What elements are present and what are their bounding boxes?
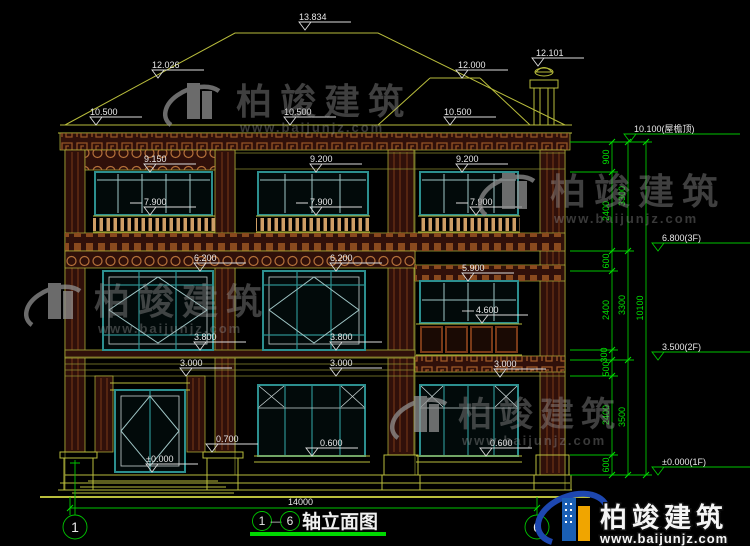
- dim-2400b: 2400: [601, 300, 611, 320]
- elev-band-right: 3.000: [494, 359, 517, 369]
- elev-ridge-right: 12.000: [458, 60, 486, 70]
- title-separator: —: [271, 516, 282, 528]
- f2-right-window: [420, 281, 518, 323]
- f3-windows: [95, 172, 518, 215]
- dim-300: 300: [599, 347, 609, 362]
- elev-f2-mid: 6.200: [330, 253, 353, 263]
- axis-bubble-1: 1: [63, 515, 87, 539]
- title-axis-to: 6: [287, 514, 294, 528]
- level-2f: 3.500(2F): [662, 342, 701, 352]
- axis-1-label: 1: [71, 519, 79, 535]
- elev-ridge: 13.834: [299, 12, 327, 22]
- logo-building-icon: [562, 498, 576, 541]
- watermark-brand: 柏竣建筑: [94, 281, 270, 322]
- title-underline: [250, 532, 386, 536]
- elev-porch-base: 0.700: [216, 434, 239, 444]
- drawing-title: 1 — 6 轴立面图: [250, 510, 386, 536]
- elevation-drawing: 13.834 12.026 12.000 12.101 10.500 10.50…: [0, 0, 750, 546]
- elev-sill1-mid: 0.600: [320, 438, 343, 448]
- watermark-url: www.baijunjz.com: [461, 433, 606, 448]
- f3-left-window: [95, 172, 212, 215]
- watermark-brand: 柏竣建筑: [458, 395, 622, 434]
- f3-balcony-railings: [93, 216, 520, 232]
- elev-f2-right: 5.900: [462, 263, 485, 273]
- elev-band-left: 3.000: [180, 358, 203, 368]
- watermark-url: www.baijunjz.com: [239, 120, 384, 135]
- dim-900: 900: [601, 149, 611, 164]
- watermark-left: 柏竣建筑 www.baijunjz.com: [26, 281, 270, 336]
- chimney: [530, 68, 558, 126]
- f2-right-balcony: [416, 324, 522, 355]
- level-roof: 10.100(屋檐顶): [634, 123, 695, 134]
- dim-500: 500: [601, 361, 611, 376]
- elev-rail-left: 7.900: [144, 197, 167, 207]
- dim-3300b: 3300: [617, 295, 627, 315]
- watermark-url: www.baijunjz.com: [97, 321, 242, 336]
- watermark-brand: 柏竣建筑: [236, 81, 412, 122]
- elev-f3-right: 9.200: [456, 154, 479, 164]
- elev-rail-mid: 7.900: [310, 197, 333, 207]
- elev-f2-left: 6.200: [194, 253, 217, 263]
- elev-ground: ±0.000: [146, 454, 173, 464]
- brand-logo: 柏竣建筑 www.baijunjz.com: [538, 494, 728, 546]
- dim-600a: 600: [601, 253, 611, 268]
- elev-hip-left: 12.026: [152, 60, 180, 70]
- elev-chimney: 12.101: [536, 48, 564, 58]
- watermark-url: www.baijunjz.com: [553, 211, 698, 226]
- title-text: 轴立面图: [302, 510, 378, 533]
- watermark-top: 柏竣建筑 www.baijunjz.com: [165, 81, 412, 135]
- dim-total-10100: 10100: [635, 295, 645, 320]
- elev-f3-left: 9.150: [144, 154, 167, 164]
- level-3f: 6.800(3F): [662, 233, 701, 243]
- dim-600b: 600: [601, 457, 611, 472]
- title-axis-from: 1: [259, 514, 266, 528]
- level-1f: ±0.000(1F): [662, 457, 706, 467]
- dim-14000: 14000: [288, 497, 313, 507]
- elev-f3-mid: 9.200: [310, 154, 333, 164]
- elev-band-mid: 3.000: [330, 358, 353, 368]
- logo-building2-icon: [578, 506, 590, 541]
- logo-brand-text: 柏竣建筑: [600, 502, 728, 533]
- watermark-brand: 柏竣建筑: [550, 171, 726, 212]
- elev-balcony-right: 4.600: [476, 305, 499, 315]
- elev-eave-right: 10.500: [444, 107, 472, 117]
- cad-canvas: 13.834 12.026 12.000 12.101 10.500 10.50…: [0, 0, 750, 546]
- elev-sill-mid: 3.800: [330, 332, 353, 342]
- logo-url-text: www.baijunjz.com: [599, 531, 728, 546]
- f3-mid-window: [258, 172, 368, 215]
- elev-eave-left: 10.500: [90, 107, 118, 117]
